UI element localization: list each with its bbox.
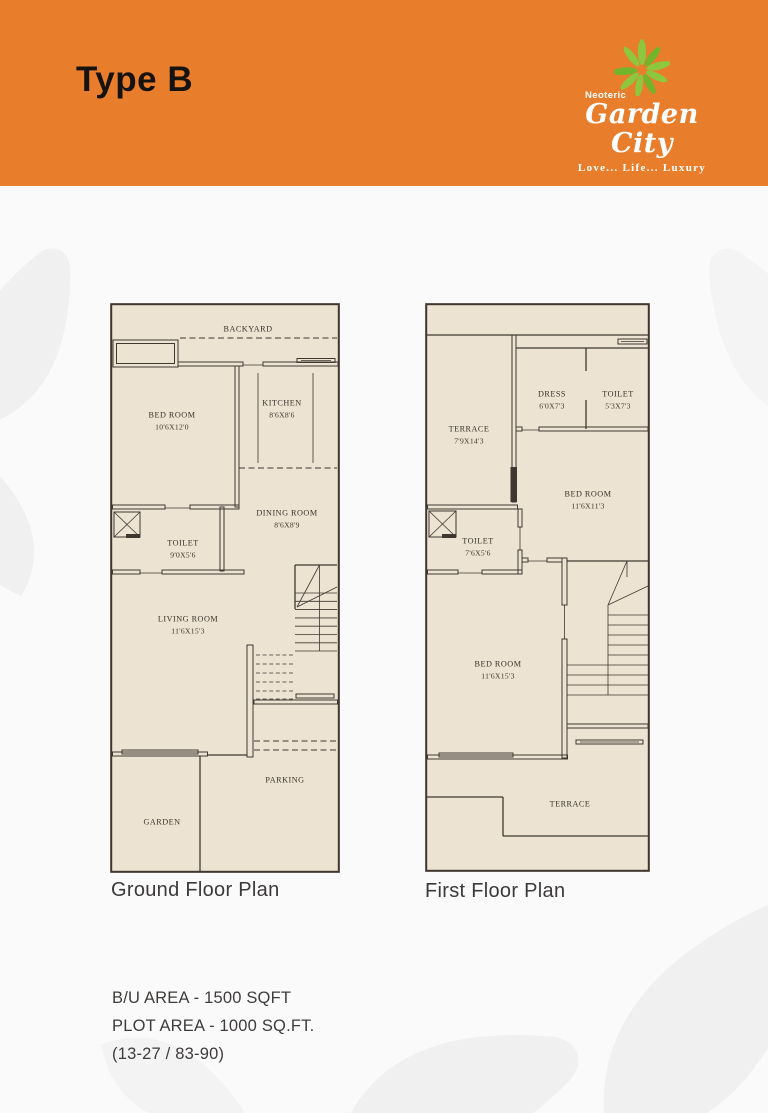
ground-floor-drawing xyxy=(110,303,340,873)
brand-garden-city: Garden City xyxy=(553,100,731,158)
ground-floor-plan: BACKYARD BED ROOM 10'6X12'0 KITCHEN 8'6X… xyxy=(110,303,340,873)
first-floor-plan: TERRACE 7'9X14'3 DRESS 6'0X7'3 TOILET 5'… xyxy=(425,303,650,872)
room-label-terrace-bottom: TERRACE xyxy=(550,798,591,810)
first-floor-caption: First Floor Plan xyxy=(425,880,565,903)
room-label-dress: DRESS 6'0X7'3 xyxy=(538,389,566,412)
room-label-backyard: BACKYARD xyxy=(223,323,272,335)
unit-numbers-line: (13-27 / 83-90) xyxy=(112,1040,314,1068)
brand-logo: Neoteric Garden City Love... Life... Lux… xyxy=(553,38,731,174)
room-label-terrace: TERRACE 7'9X14'3 xyxy=(449,424,490,447)
flyer-page: Type B Neoteric Garden City Love... Life… xyxy=(0,0,768,1113)
room-label-toilet: TOILET 9'0X5'6 xyxy=(167,538,199,561)
header-band: Type B Neoteric Garden City Love... Life… xyxy=(0,0,768,186)
room-label-bedroom-lower: BED ROOM 11'6X15'3 xyxy=(475,659,522,682)
room-label-bedroom-upper: BED ROOM 11'6X11'3 xyxy=(565,489,612,512)
room-label-bedroom: BED ROOM 10'6X12'0 xyxy=(149,410,196,433)
room-label-parking: PARKING xyxy=(265,774,304,786)
page-title: Type B xyxy=(76,60,193,100)
brand-tagline: Love... Life... Luxury xyxy=(553,162,731,174)
plot-area-line: PLOT AREA - 1000 SQ.FT. xyxy=(112,1012,314,1040)
room-label-garden: GARDEN xyxy=(143,816,180,828)
room-label-toilet-first: TOILET 7'6X5'6 xyxy=(462,536,494,559)
bu-area-line: B/U AREA - 1500 SQFT xyxy=(112,984,314,1012)
room-label-dining: DINING ROOM 8'6X8'9 xyxy=(256,508,317,531)
room-label-living: LIVING ROOM 11'6X15'3 xyxy=(158,614,218,637)
area-details: B/U AREA - 1500 SQFT PLOT AREA - 1000 SQ… xyxy=(112,984,314,1068)
room-label-kitchen: KITCHEN 8'6X8'6 xyxy=(262,398,301,421)
ground-floor-caption: Ground Floor Plan xyxy=(111,879,280,902)
room-label-toilet-top: TOILET 5'3X7'3 xyxy=(602,389,634,412)
flower-icon xyxy=(614,38,670,96)
